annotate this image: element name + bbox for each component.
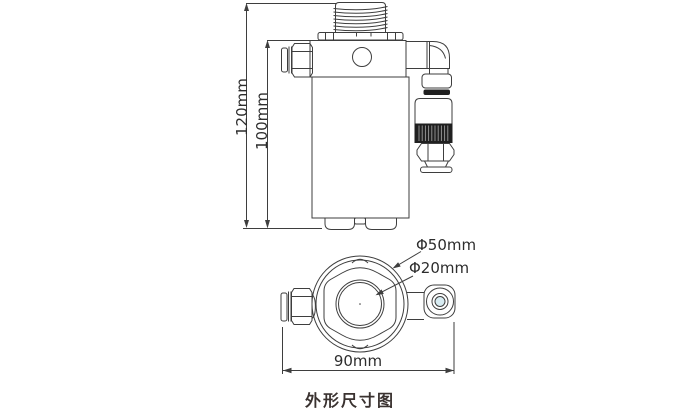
top-flange bbox=[318, 33, 403, 41]
dimension-drawing-page: 120mm 100mm Φ50mm Φ20mm 90mm 外形尺寸图 bbox=[0, 0, 700, 412]
port-opening bbox=[435, 297, 445, 307]
dim-label-overall-width: 90mm bbox=[331, 353, 385, 369]
line-art-canvas bbox=[0, 0, 700, 412]
dim-label-port-diameter: Φ20mm bbox=[409, 260, 469, 276]
left-port-fitting bbox=[282, 44, 313, 78]
bottom-feet bbox=[325, 218, 397, 230]
drawing-caption: 外形尺寸图 bbox=[305, 387, 395, 411]
arrow-down-icon bbox=[265, 220, 270, 229]
left-fitting-top bbox=[281, 289, 315, 325]
front-view bbox=[282, 3, 455, 230]
knurled-band bbox=[415, 124, 452, 143]
body-cylinder bbox=[312, 77, 409, 218]
arrow-right-icon bbox=[446, 368, 455, 373]
arrow-up-icon bbox=[244, 3, 249, 11]
elbow-fitting bbox=[406, 42, 454, 173]
arrow-up-icon bbox=[265, 40, 270, 48]
o-ring-band bbox=[424, 90, 451, 96]
thread-port bbox=[334, 3, 388, 33]
arrow-down-icon bbox=[244, 220, 249, 228]
right-fitting-top bbox=[407, 285, 455, 320]
dim-label-outer-diameter: Φ50mm bbox=[416, 237, 476, 253]
arrow-left-icon bbox=[283, 368, 292, 373]
dim-label-body-height: 100mm bbox=[254, 94, 270, 150]
hex-nut bbox=[417, 144, 454, 162]
head-block bbox=[310, 41, 406, 78]
leader-arrow-icon bbox=[393, 262, 401, 268]
dim-label-overall-height: 120mm bbox=[234, 80, 250, 136]
sight-hole bbox=[353, 48, 372, 67]
